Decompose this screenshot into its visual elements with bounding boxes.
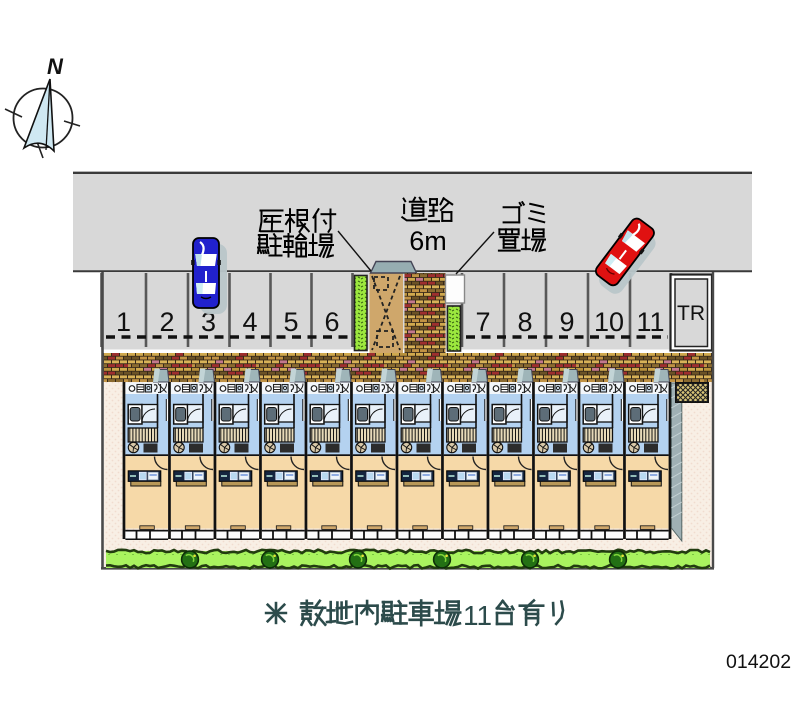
svg-text:11: 11 — [636, 307, 664, 337]
svg-text:2: 2 — [159, 307, 174, 337]
svg-text:014202: 014202 — [726, 651, 791, 673]
svg-text:5: 5 — [283, 307, 298, 337]
svg-text:6m: 6m — [409, 226, 447, 256]
svg-text:11: 11 — [463, 600, 492, 631]
svg-text:4: 4 — [242, 307, 257, 337]
svg-text:1: 1 — [116, 307, 131, 337]
svg-text:6: 6 — [324, 307, 339, 337]
svg-text:7: 7 — [475, 307, 490, 337]
svg-text:8: 8 — [517, 307, 532, 337]
svg-text:10: 10 — [594, 307, 624, 337]
svg-text:N: N — [47, 54, 64, 79]
svg-text:TR: TR — [677, 302, 705, 325]
svg-text:9: 9 — [559, 307, 574, 337]
